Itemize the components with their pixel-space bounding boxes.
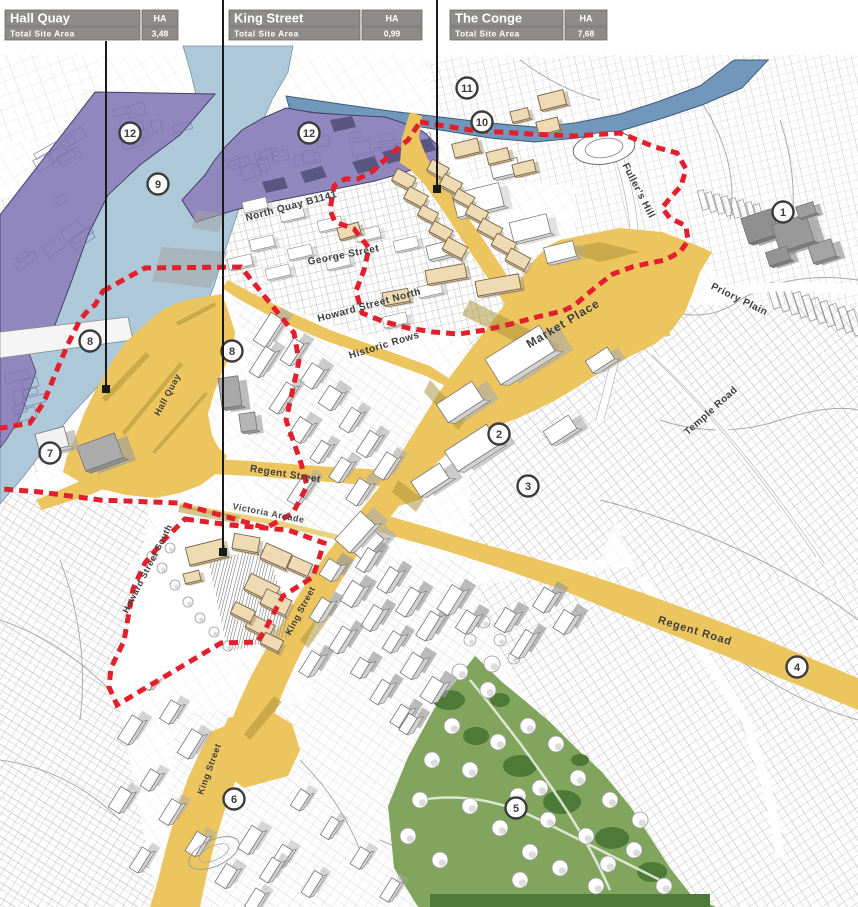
svg-text:Total Site Area: Total Site Area	[10, 29, 75, 39]
svg-text:4: 4	[794, 662, 801, 674]
svg-text:3,48: 3,48	[152, 29, 169, 39]
svg-text:HA: HA	[154, 14, 167, 24]
svg-text:2: 2	[496, 429, 502, 441]
svg-text:5: 5	[513, 803, 519, 815]
svg-text:12: 12	[124, 128, 136, 140]
svg-text:8: 8	[229, 346, 235, 358]
svg-text:Hall Quay: Hall Quay	[10, 11, 71, 26]
svg-text:10: 10	[476, 117, 488, 129]
svg-text:Total Site Area: Total Site Area	[455, 29, 520, 39]
svg-text:Total Site Area: Total Site Area	[234, 29, 299, 39]
svg-text:3: 3	[525, 481, 531, 493]
svg-text:The Conge: The Conge	[455, 11, 522, 26]
svg-text:11: 11	[461, 83, 473, 95]
svg-text:7,68: 7,68	[578, 29, 595, 39]
svg-text:8: 8	[87, 336, 93, 348]
svg-text:1: 1	[780, 207, 786, 219]
svg-text:12: 12	[303, 128, 315, 140]
svg-text:HA: HA	[580, 14, 593, 24]
svg-text:6: 6	[231, 794, 237, 806]
svg-text:HA: HA	[386, 14, 399, 24]
svg-text:7: 7	[47, 448, 53, 460]
svg-text:9: 9	[155, 179, 161, 191]
svg-text:King Street: King Street	[234, 11, 304, 26]
svg-text:0,99: 0,99	[384, 29, 401, 39]
